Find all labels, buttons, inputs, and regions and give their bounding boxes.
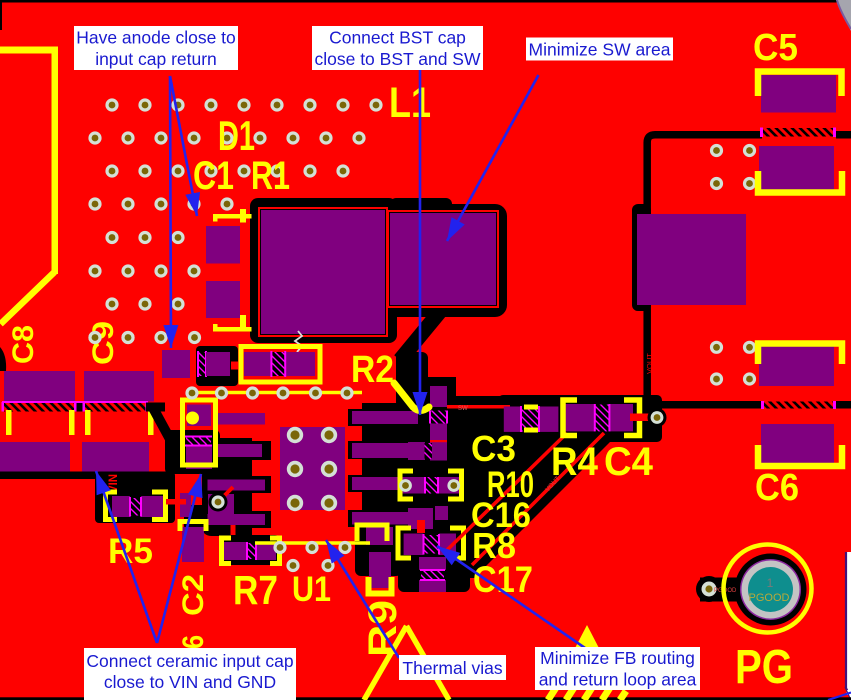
svg-text:Have anode close to: Have anode close to — [76, 28, 236, 48]
svg-text:and return loop area: and return loop area — [539, 669, 697, 689]
svg-text:Minimize SW area: Minimize SW area — [529, 39, 671, 59]
svg-text:R2: R2 — [351, 349, 394, 391]
svg-text:Thermal vias: Thermal vias — [402, 658, 502, 678]
svg-text:close to VIN and GND: close to VIN and GND — [104, 672, 276, 692]
svg-text:PG: PG — [735, 641, 793, 694]
svg-text:SW: SW — [458, 406, 468, 412]
svg-text:C1: C1 — [193, 154, 234, 198]
svg-text:VOUT: VOUT — [645, 353, 654, 374]
svg-text:input cap return: input cap return — [95, 49, 217, 69]
svg-text:Minimize FB routing: Minimize FB routing — [540, 648, 695, 668]
svg-text:U1: U1 — [292, 570, 331, 609]
svg-text:Connect BST cap: Connect BST cap — [329, 28, 466, 48]
svg-text:R4: R4 — [551, 440, 599, 484]
svg-text:1: 1 — [767, 576, 774, 590]
svg-text:C17: C17 — [473, 559, 533, 600]
svg-text:C4: C4 — [604, 440, 654, 484]
svg-text:C3: C3 — [471, 428, 516, 469]
svg-text:C8: C8 — [7, 325, 40, 364]
svg-text:L1: L1 — [389, 79, 431, 127]
svg-text:close to BST and SW: close to BST and SW — [314, 49, 480, 69]
svg-text:R1: R1 — [251, 154, 290, 198]
svg-text:C5: C5 — [753, 27, 798, 69]
svg-text:Connect ceramic input cap: Connect ceramic input cap — [86, 651, 293, 671]
svg-text:D1: D1 — [218, 112, 255, 159]
svg-text:PGOOD: PGOOD — [749, 592, 790, 604]
svg-text:C2: C2 — [177, 574, 210, 616]
svg-text:R7: R7 — [233, 567, 278, 613]
svg-text:C6: C6 — [755, 467, 799, 509]
svg-text:6: 6 — [177, 635, 210, 649]
